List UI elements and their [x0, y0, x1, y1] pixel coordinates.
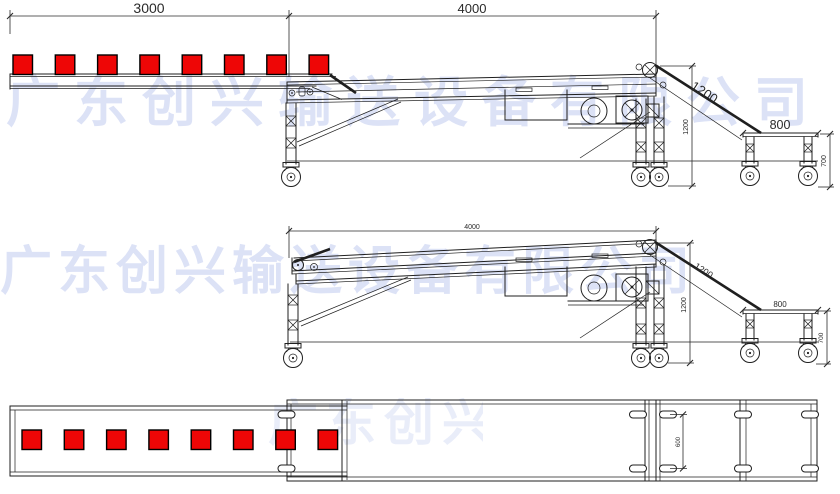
dim-label-4000: 4000 — [464, 224, 480, 231]
side-view-extended: 3000 4000 — [7, 0, 834, 190]
left-leg — [282, 99, 402, 187]
caster-wheel — [650, 344, 669, 368]
mounting-slot — [802, 465, 819, 472]
drive-unit — [568, 274, 659, 305]
infeed-plan — [10, 401, 347, 480]
mounting-slot — [278, 411, 295, 418]
motor — [581, 275, 607, 301]
pulley-bolt — [636, 64, 642, 70]
dim-label-3000: 3000 — [133, 0, 164, 16]
dim-label-800: 800 — [773, 300, 787, 309]
mounting-slot — [735, 465, 752, 472]
belt-clamp — [592, 86, 608, 90]
product-box — [309, 55, 329, 75]
dim-label-800: 800 — [770, 118, 791, 132]
product-box — [55, 55, 75, 75]
diagonal-brace — [297, 99, 398, 142]
side-view-retracted: 4000 — [284, 224, 832, 368]
mounting-slot — [630, 465, 647, 472]
caster-wheel — [284, 344, 303, 368]
leg-adjuster — [804, 144, 812, 152]
gearbox-flange — [622, 100, 642, 120]
diagonal-brace — [580, 292, 650, 338]
diagonal-brace — [299, 277, 408, 322]
product-box — [267, 55, 287, 75]
gearbox-flange — [622, 277, 642, 297]
dim-label-incline-1200: 1200 — [688, 78, 720, 106]
dimension-discharge-height: 700 — [818, 131, 834, 190]
product-box — [98, 55, 118, 75]
dimension-discharge-height: 700 — [816, 308, 831, 367]
cad-drawing: 3000 4000 — [0, 0, 840, 494]
caster-wheel — [741, 162, 760, 186]
product-boxes-side — [13, 55, 329, 75]
dim-label-600: 600 — [676, 436, 682, 447]
incline-section: 1200 — [636, 240, 761, 318]
leg-adjuster — [636, 298, 646, 308]
leg-adjuster — [654, 118, 664, 128]
diagonal-brace — [580, 112, 650, 158]
product-box — [107, 430, 127, 450]
mounting-slot — [278, 465, 295, 472]
leg-adjuster — [286, 116, 296, 126]
plan-view: 600 — [10, 400, 819, 481]
conveyor-belt — [290, 240, 818, 342]
discharge-table — [741, 310, 819, 363]
leg-adjuster — [288, 320, 298, 330]
dimension-discharge-length: 800 — [740, 300, 821, 313]
mounting-slot — [802, 411, 819, 418]
product-boxes-plan — [22, 430, 338, 450]
right-legs — [580, 97, 669, 187]
product-box — [64, 430, 84, 450]
mounting-slot — [735, 411, 752, 418]
dimension-slot-spacing: 600 — [670, 412, 687, 472]
dim-label-700: 700 — [818, 332, 825, 343]
dim-label-height-1200: 1200 — [681, 297, 688, 313]
product-box — [149, 430, 169, 450]
dimension-main-length: 4000 — [286, 224, 659, 258]
dim-label-height-1200: 1200 — [683, 119, 690, 135]
caster-wheel — [799, 162, 818, 186]
leg-adjuster — [286, 138, 296, 148]
drive-unit — [568, 96, 659, 128]
product-box — [22, 430, 42, 450]
leg-adjuster — [654, 324, 664, 334]
leg-adjuster — [804, 320, 812, 328]
product-box — [318, 430, 338, 450]
leg-adjuster — [746, 320, 754, 328]
product-box — [13, 55, 33, 75]
left-leg — [284, 277, 412, 368]
belt-clamp — [516, 88, 532, 92]
discharge-table — [741, 133, 819, 186]
product-box — [234, 430, 254, 450]
product-box — [191, 430, 211, 450]
caster-wheel — [632, 344, 651, 368]
caster-wheel — [282, 163, 301, 187]
dimension-main-length: 4000 — [289, 1, 659, 64]
dim-label-700: 700 — [821, 155, 828, 167]
leg-adjuster — [654, 298, 664, 308]
mounting-slot — [630, 411, 647, 418]
caster-wheel — [650, 163, 669, 187]
leg-adjuster — [654, 142, 664, 152]
leg-adjuster — [636, 324, 646, 334]
motor — [581, 98, 607, 124]
main-frame — [287, 66, 818, 161]
product-box — [182, 55, 202, 75]
product-box — [140, 55, 160, 75]
product-box — [276, 430, 296, 450]
leg-adjuster — [636, 142, 646, 152]
cross-members — [630, 400, 819, 481]
leg-adjuster — [746, 144, 754, 152]
leg-adjuster — [288, 295, 298, 305]
caster-wheel — [632, 163, 651, 187]
product-box — [225, 55, 245, 75]
drawing-canvas: 广东创兴输送设备有限公司 广东创兴输送设备有限公司 广东创兴输送设备有限公司 — [0, 0, 840, 494]
dim-label-4000: 4000 — [458, 1, 487, 16]
